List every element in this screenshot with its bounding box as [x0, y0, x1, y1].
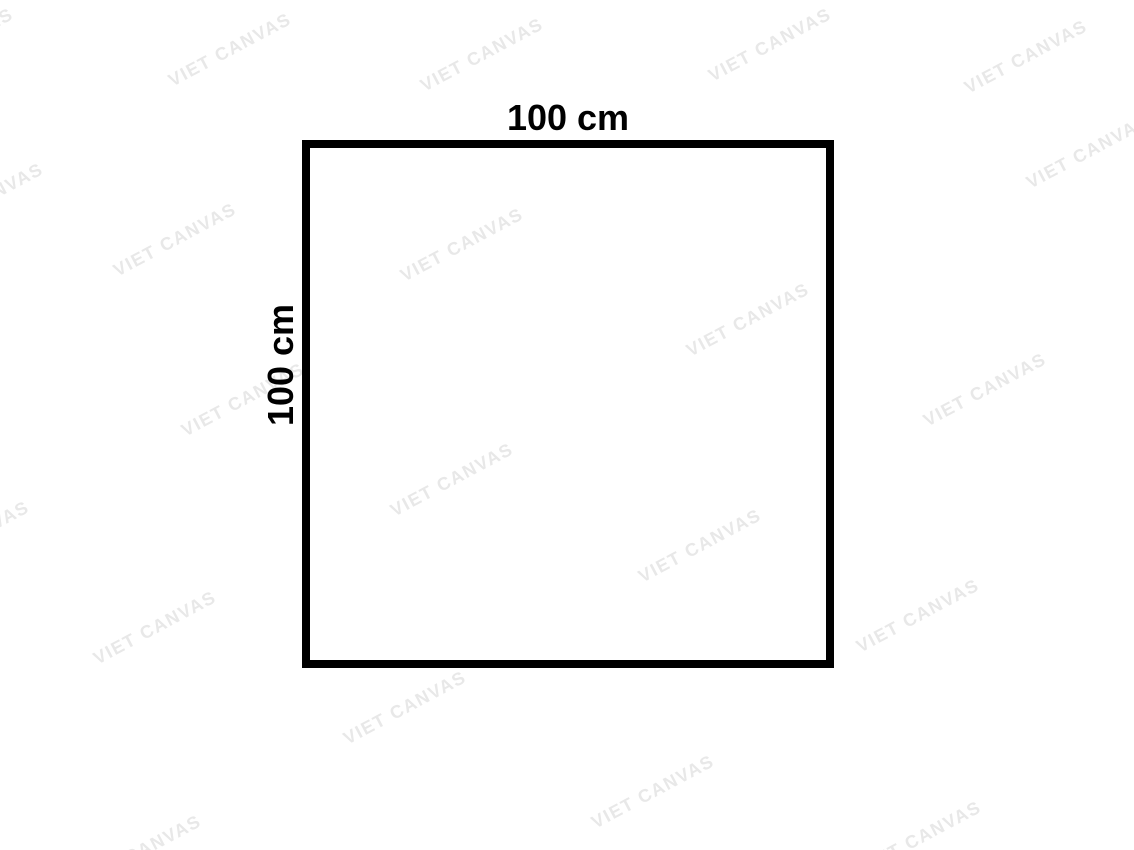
watermark-text: VIET CANVAS: [417, 14, 547, 96]
diagram-canvas: VIET CANVASVIET CANVASVIET CANVASVIET CA…: [0, 0, 1134, 850]
watermark-text: VIET CANVAS: [961, 16, 1091, 98]
square-outline: [302, 140, 834, 668]
watermark-text: VIET CANVAS: [0, 159, 47, 241]
watermark-text: VIET CANVAS: [855, 797, 985, 850]
width-dimension-label: 100 cm: [302, 100, 834, 136]
watermark-text: VIET CANVAS: [165, 9, 295, 91]
watermark-text: VIET CANVAS: [75, 811, 205, 850]
watermark-text: VIET CANVAS: [340, 667, 470, 749]
height-dimension-label: 100 cm: [263, 304, 299, 426]
watermark-text: VIET CANVAS: [1023, 111, 1134, 193]
watermark-text: VIET CANVAS: [705, 4, 835, 86]
watermark-text: VIET CANVAS: [0, 4, 17, 86]
watermark-text: VIET CANVAS: [588, 751, 718, 833]
watermark-text: VIET CANVAS: [0, 497, 33, 579]
watermark-text: VIET CANVAS: [853, 575, 983, 657]
watermark-text: VIET CANVAS: [920, 349, 1050, 431]
watermark-text: VIET CANVAS: [110, 199, 240, 281]
watermark-text: VIET CANVAS: [90, 587, 220, 669]
